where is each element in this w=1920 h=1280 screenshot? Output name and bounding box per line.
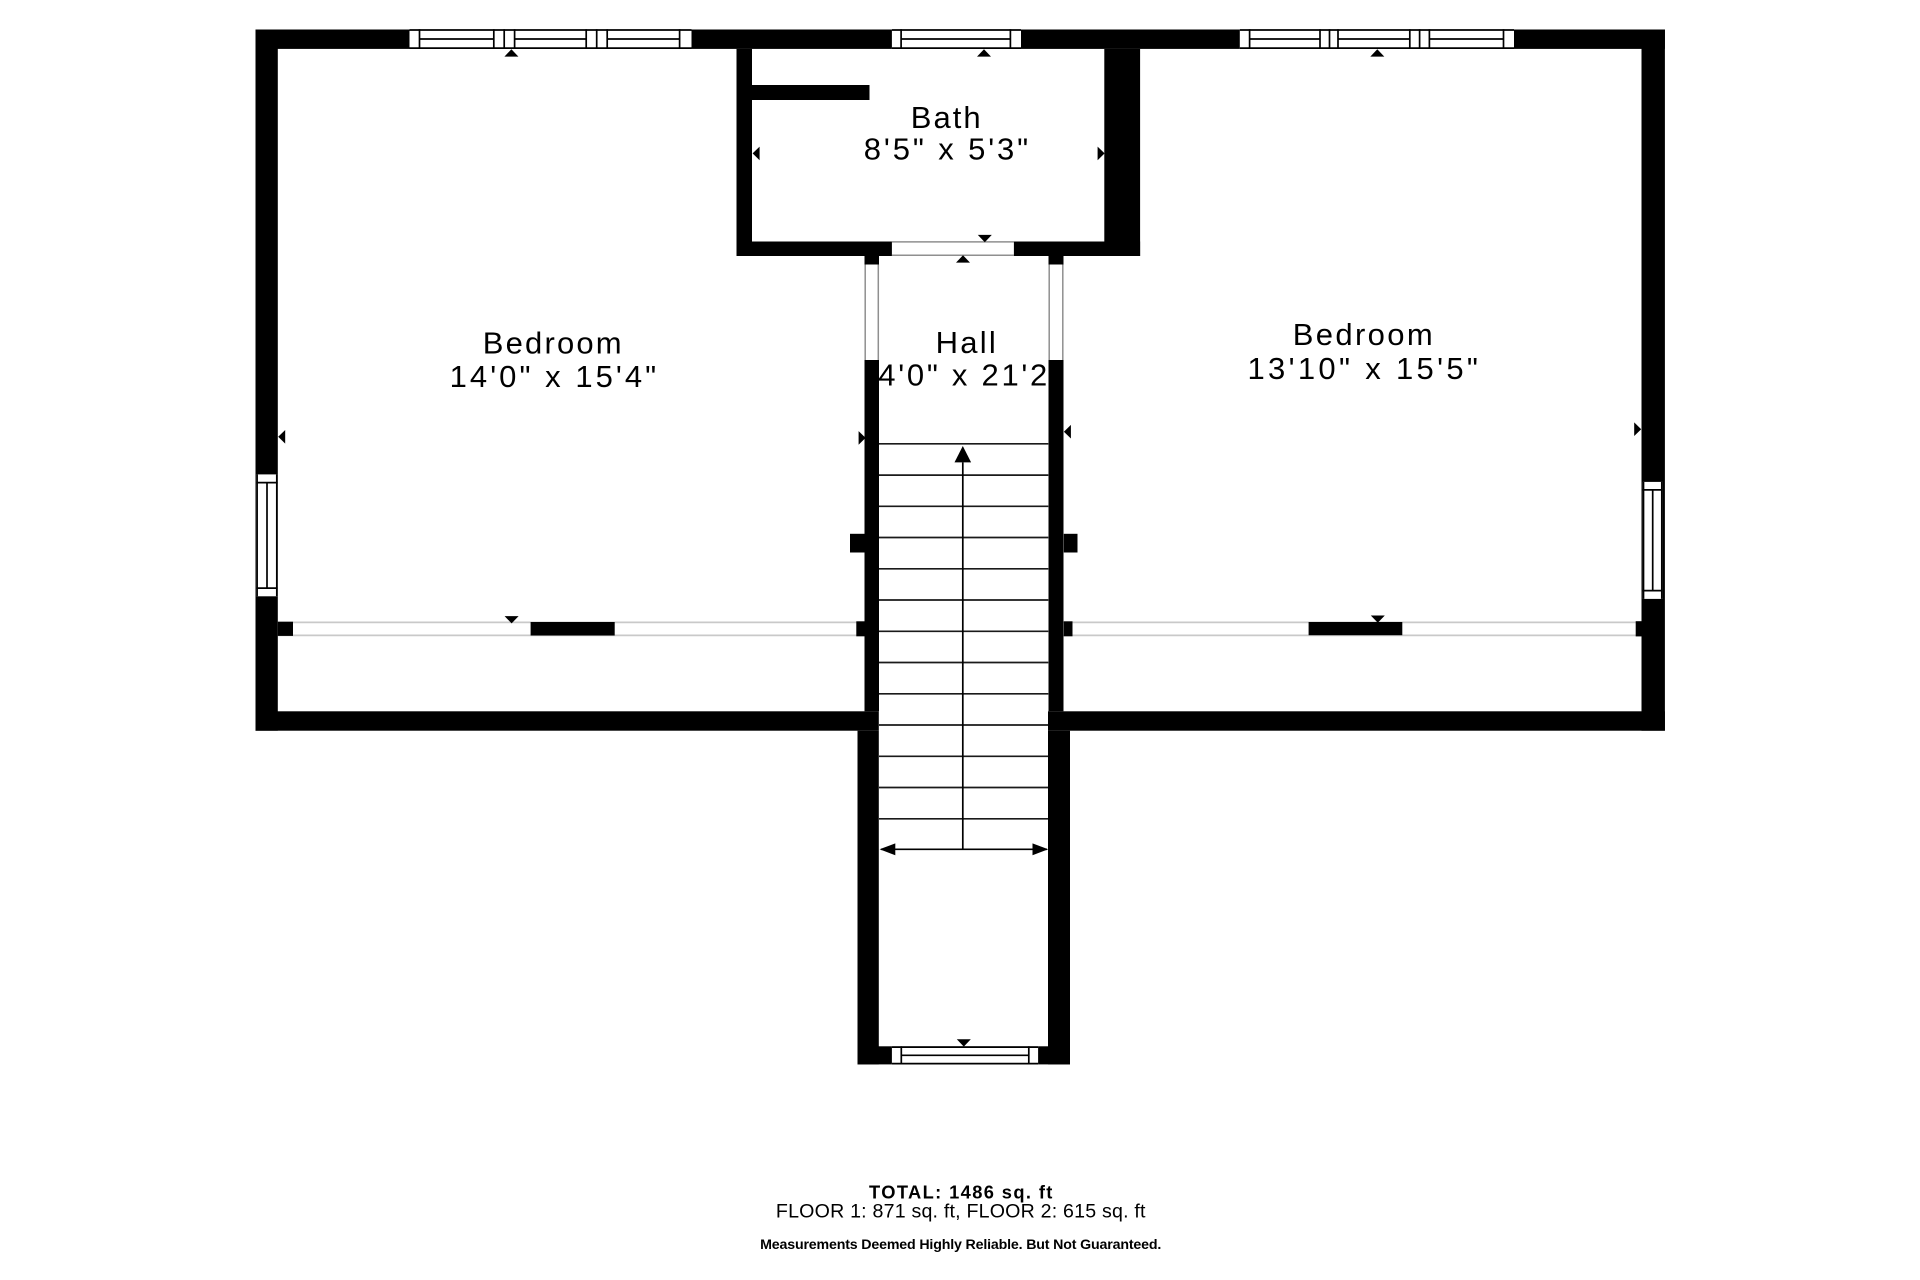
svg-text:Bath: Bath	[911, 100, 981, 135]
svg-text:8'5" x 5'3": 8'5" x 5'3"	[864, 131, 1028, 166]
svg-text:14'0" x 15'4": 14'0" x 15'4"	[450, 359, 657, 394]
svg-text:Measurements Deemed Highly Rel: Measurements Deemed Highly Reliable. But…	[760, 1237, 1161, 1253]
svg-text:FLOOR 1: 871 sq. ft, FLOOR 2:: FLOOR 1: 871 sq. ft, FLOOR 2: 615 sq. ft	[776, 1200, 1146, 1222]
svg-text:4'0" x 21'2: 4'0" x 21'2	[878, 358, 1047, 393]
